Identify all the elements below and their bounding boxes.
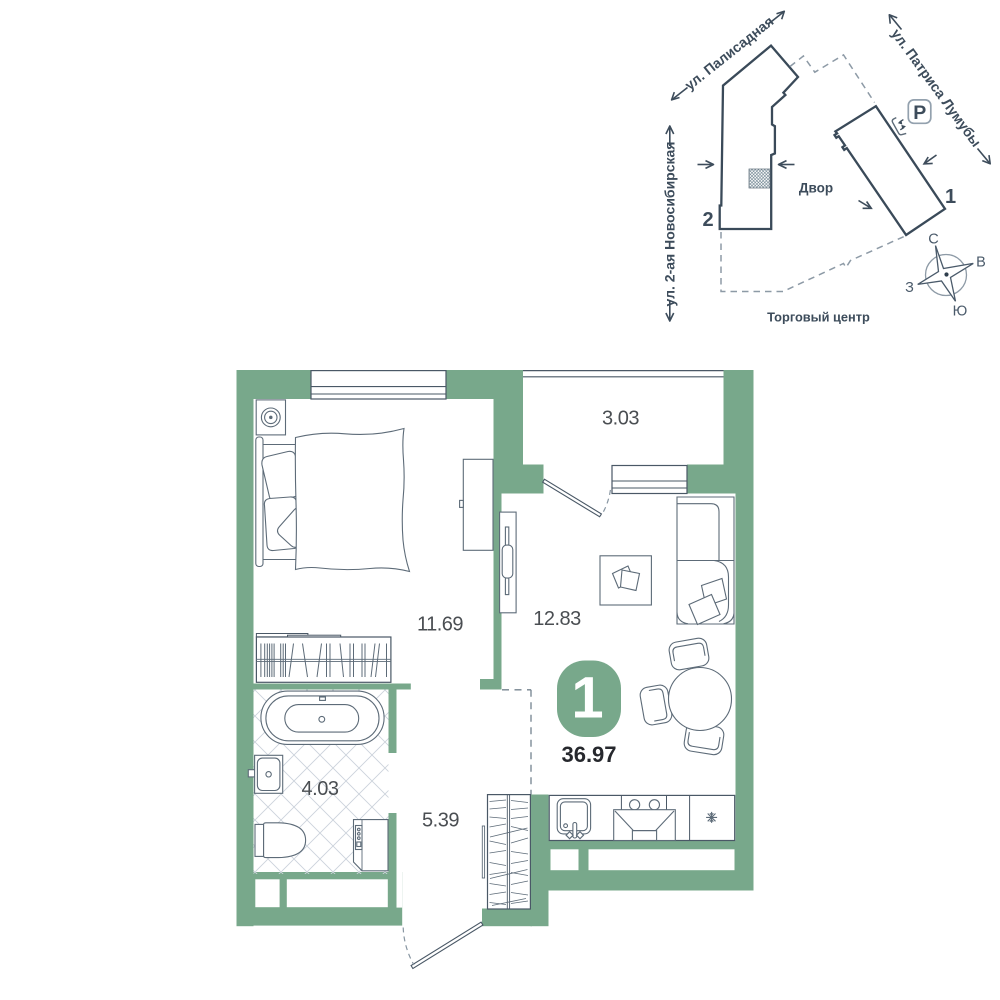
svg-text:1: 1 bbox=[945, 186, 956, 208]
svg-text:С: С bbox=[928, 232, 938, 248]
svg-text:4.03: 4.03 bbox=[302, 778, 339, 800]
svg-text:Ю: Ю bbox=[953, 304, 968, 320]
svg-text:З: З bbox=[905, 280, 914, 296]
svg-text:5.39: 5.39 bbox=[422, 810, 459, 832]
svg-text:11.69: 11.69 bbox=[417, 614, 463, 636]
svg-text:3.03: 3.03 bbox=[602, 408, 639, 430]
svg-text:12.83: 12.83 bbox=[533, 608, 581, 630]
svg-text:Торговый центр: Торговый центр bbox=[767, 310, 870, 325]
svg-text:В: В bbox=[976, 255, 986, 271]
svg-text:P: P bbox=[913, 102, 926, 124]
svg-text:1: 1 bbox=[571, 666, 603, 731]
svg-text:ул. 2-ая Новосибирская: ул. 2-ая Новосибирская bbox=[662, 142, 678, 307]
svg-text:36.97: 36.97 bbox=[561, 742, 616, 767]
svg-text:Двор: Двор bbox=[799, 181, 833, 196]
svg-text:2: 2 bbox=[702, 209, 713, 231]
